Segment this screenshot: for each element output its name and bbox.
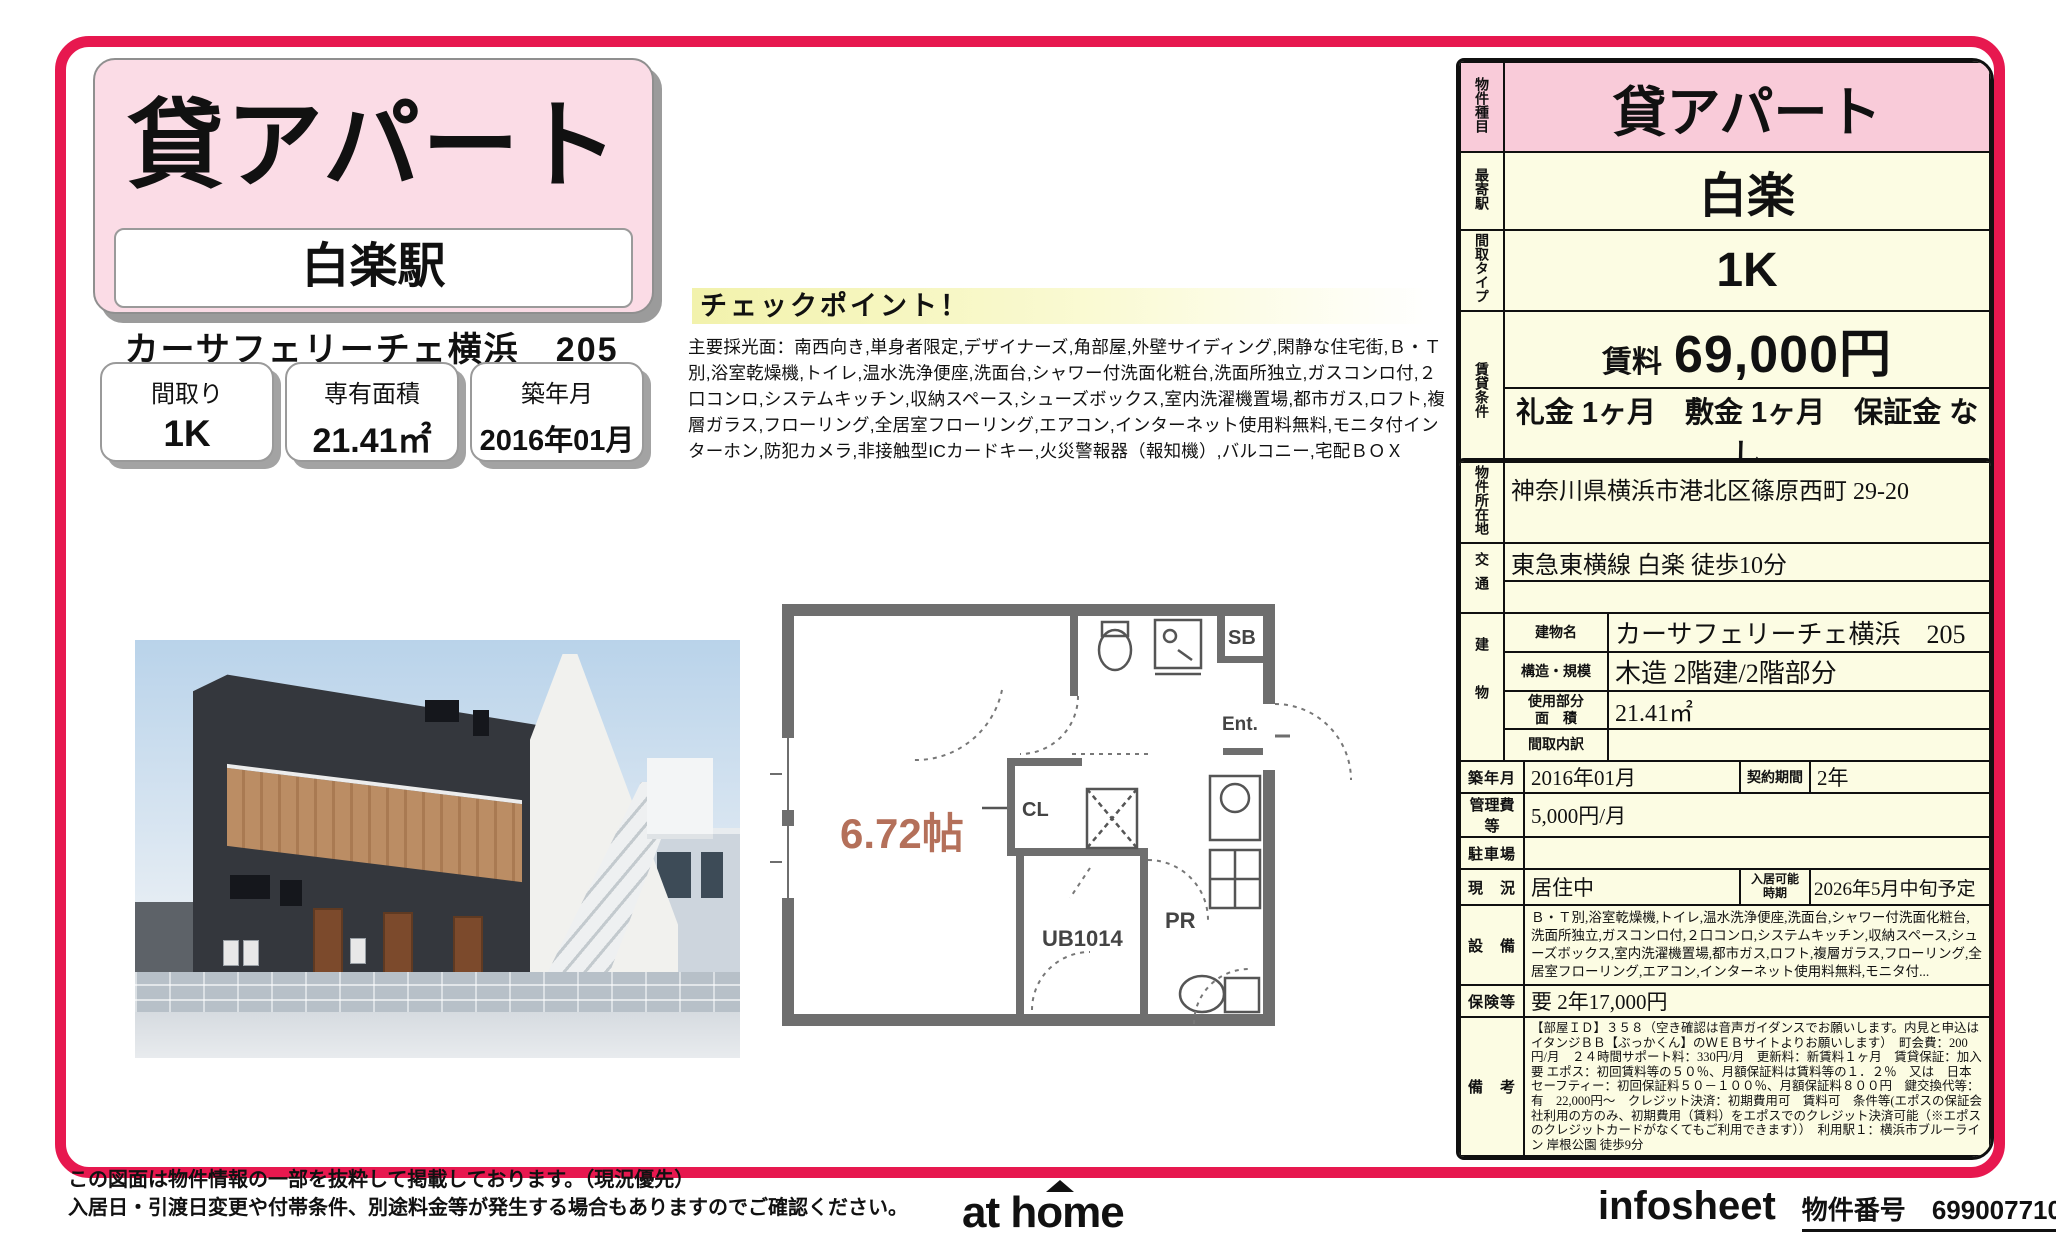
parking-value [1524,837,1990,869]
meter-box [243,940,259,966]
infosheet-label: infosheet [1598,1184,1776,1229]
footer-disclaimer: この図面は物件情報の一部を抜粋して掲載しております。（現況優先） 入居日・引渡日… [68,1166,948,1222]
layout-detail-label: 間取内訳 [1504,729,1608,761]
athome-logo: at home [962,1188,1124,1238]
fee-label: 管理費等 [1460,793,1524,837]
summary-box-area: 専有面積 21.41㎡ [285,362,459,462]
notes-value: 【部屋ＩＤ】３５８（空き確認は音声ガイダンスでお願いします。内見と申込はイタンジ… [1524,1017,1990,1156]
spec-type-value: 貸アパート [1504,62,1990,152]
infosheet-footer: infosheet 物件番号 69900771035 [1598,1184,2008,1232]
meter-box [223,940,239,966]
detail-building-label: 建物 [1460,613,1504,761]
spec-station-value: 白楽 [1504,152,1990,230]
movein-value: 2026年5月中旬予定 [1810,869,1990,905]
building-name-label: 建物名 [1504,613,1608,652]
insurance-value: 要 2年17,000円 [1524,985,1990,1017]
door [453,916,483,978]
powder-room-label: PR [1165,908,1196,933]
building-name-value: カーサフェリーチェ横浜 205 [1608,613,1990,652]
equipment-label: 設 備 [1460,905,1524,985]
window [425,700,459,722]
rent-label: 賃料 [1602,337,1662,381]
summary-label: 築年月 [472,374,642,409]
structure-label: 構造・規模 [1504,652,1608,691]
parking-label: 駐車場 [1460,837,1524,869]
summary-value: 1K [102,413,272,455]
insurance-label: 保険等 [1460,985,1524,1017]
summary-box-layout: 間取り 1K [100,362,274,462]
floor-plan: 6.72帖 CL UB1014 PR SB Ent. [770,598,1370,1038]
detail-traffic-label: 交通 [1460,543,1504,613]
spec-layout-label: 間取タイプ [1460,230,1504,311]
footer-note-1: この図面は物件情報の一部を抜粋して掲載しております。（現況優先） [68,1166,948,1194]
property-photo [135,640,740,1058]
window [473,710,489,736]
notes-label: 備 考 [1460,1017,1524,1156]
page-title: 貸アパート [95,76,652,217]
spec-layout-value: 1K [1504,230,1990,311]
structure-value: 木造 2階建/2階部分 [1608,652,1990,691]
meter-box [350,938,366,964]
summary-box-built: 築年月 2016年01月 [470,362,644,462]
shoe-box-label: SB [1228,627,1256,649]
use-area-value: 21.41㎡ [1608,691,1990,729]
layout-detail-value [1608,729,1990,761]
balcony-railing [647,758,713,839]
checkpoint-title: チェックポイント！ [700,288,970,324]
door-arcs [914,690,1351,1024]
spec-type-label: 物件種目 [1460,62,1504,152]
block-wall [135,972,740,1016]
fee-value: 5,000円/月 [1524,793,1990,837]
athome-roof-icon [1046,1180,1074,1192]
detail-address-label: 物件所在地 [1460,462,1504,543]
concrete-ground [135,1012,740,1058]
movein-label: 入居可能時期 [1740,869,1810,905]
footer-note-2: 入居日・引渡日変更や付帯条件、別途料金等が発生する場合もありますのでご確認くださ… [68,1194,948,1222]
station-name: 白楽駅 [116,230,631,304]
detail-table: 物件所在地 神奈川県横浜市港北区篠原西町 29-20 交通 東急東横線 白楽 徒… [1456,458,1994,1160]
detail-address-value: 神奈川県横浜市港北区篠原西町 29-20 [1504,462,1990,543]
built-value: 2016年01月 [1524,761,1740,793]
window [230,875,270,899]
spec-rent: 賃料 69,000円 [1504,311,1990,388]
room-size-label: 6.72帖 [840,810,964,857]
use-area-label: 使用部分面 積 [1504,691,1608,729]
summary-value: 21.41㎡ [287,413,457,462]
rent-value: 69,000円 [1674,312,1892,387]
contract-value: 2年 [1810,761,1990,793]
status-label: 現 況 [1460,869,1524,905]
station-box: 白楽駅 [114,228,633,308]
detail-traffic-value: 東急東横線 白楽 徒歩10分 [1504,543,1990,581]
property-number: 物件番号 69900771035 [1802,1190,2056,1232]
built-label: 築年月 [1460,761,1524,793]
title-box: 貸アパート 白楽駅 [93,58,654,314]
summary-label: 専有面積 [287,374,457,409]
window [280,880,302,906]
checkpoint-body: 主要採光面：南西向き,単身者限定,デザイナーズ,角部屋,外壁サイディング,閑静な… [688,334,1446,464]
door [313,908,343,978]
closet-label: CL [1022,799,1049,821]
status-value: 居住中 [1524,869,1740,905]
entrance-label: Ent. [1222,714,1258,735]
spec-terms-label: 賃貸条件 [1460,311,1504,474]
spec-table: 物件種目 貸アパート 最寄駅 白楽 間取タイプ 1K 賃貸条件 賃料 69,00… [1456,58,1994,478]
bath-label: UB1014 [1042,926,1123,951]
summary-label: 間取り [102,374,272,409]
door [383,912,413,978]
summary-value: 2016年01月 [472,417,642,459]
spec-station-label: 最寄駅 [1460,152,1504,230]
detail-traffic-value2 [1504,581,1990,613]
equipment-value: Ｂ・Ｔ別,浴室乾燥機,トイレ,温水洗浄便座,洗面台,シャワー付洗面化粧台,洗面所… [1524,905,1990,985]
contract-label: 契約期間 [1740,761,1810,793]
